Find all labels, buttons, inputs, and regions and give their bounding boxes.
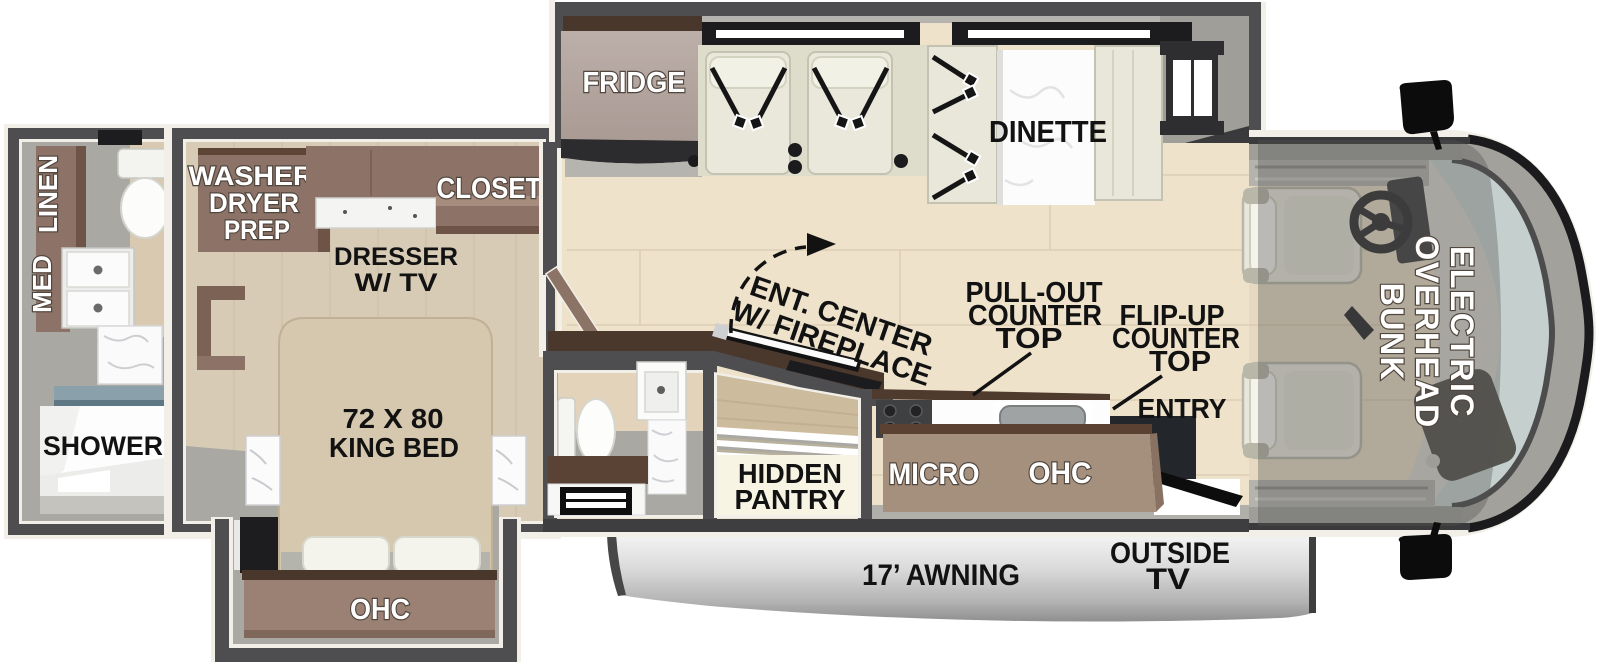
svg-text:ENTRY: ENTRY [1138,393,1227,424]
svg-text:17’ AWNING: 17’ AWNING [862,559,1020,592]
svg-text:BUNK: BUNK [1374,283,1410,381]
svg-text:PANTRY: PANTRY [735,484,846,515]
svg-text:W/ TV: W/ TV [355,269,438,297]
svg-text:ELECTRIC: ELECTRIC [1444,246,1480,418]
svg-text:DRYER: DRYER [209,188,299,218]
svg-text:OHC: OHC [350,594,410,626]
svg-text:SHOWER: SHOWER [43,431,163,461]
svg-text:LINEN: LINEN [33,155,63,233]
svg-text:CLOSET: CLOSET [437,173,542,205]
svg-text:TOP: TOP [1149,346,1211,378]
svg-text:PREP: PREP [224,215,290,245]
svg-text:TV: TV [1146,563,1190,596]
svg-text:72 X 80: 72 X 80 [343,403,444,434]
svg-text:KING BED: KING BED [329,432,459,463]
svg-text:OVERHEAD: OVERHEAD [1409,235,1445,428]
svg-text:OHC: OHC [1029,457,1092,490]
svg-text:WASHER/: WASHER/ [189,161,323,191]
svg-text:DINETTE: DINETTE [989,114,1107,149]
svg-text:MED: MED [27,255,57,313]
svg-text:MICRO: MICRO [889,458,980,491]
svg-text:TOP: TOP [996,323,1063,355]
svg-text:DRESSER: DRESSER [334,243,458,271]
svg-text:FRIDGE: FRIDGE [583,67,686,99]
